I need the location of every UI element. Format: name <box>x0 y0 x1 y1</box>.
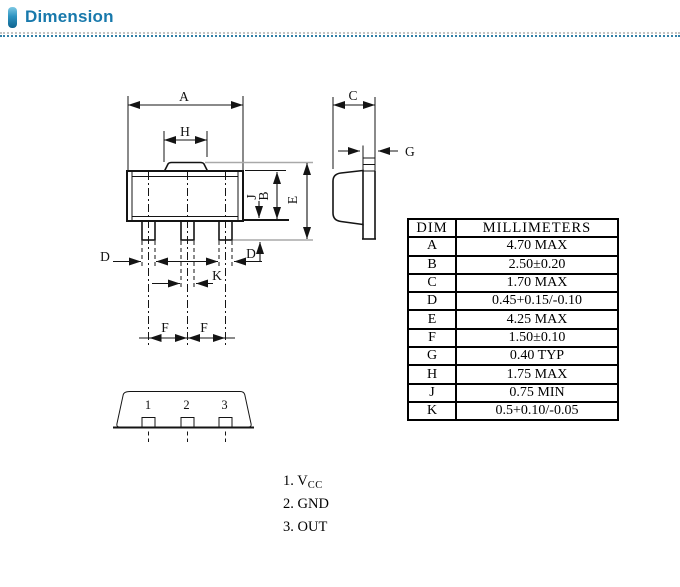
pin-list-item-1: 1. VCC <box>283 470 329 493</box>
dim-label-f-right: F <box>200 320 208 335</box>
table-row: F1.50±0.10 <box>408 329 618 347</box>
pin-3-label: 3. OUT <box>283 519 327 535</box>
dim-label-h: H <box>180 124 190 139</box>
pin-list-item-3: 3. OUT <box>283 516 329 539</box>
table-row: A4.70 MAX <box>408 237 618 255</box>
value-cell: 0.75 MIN <box>456 384 618 402</box>
col-header-dim: DIM <box>408 219 456 237</box>
value-cell: 0.45+0.15/-0.10 <box>456 292 618 310</box>
table-row: E4.25 MAX <box>408 310 618 328</box>
pin-number-1: 1 <box>145 398 151 412</box>
table-row: J0.75 MIN <box>408 384 618 402</box>
dim-label-d-right: D <box>246 246 256 261</box>
value-cell: 2.50±0.20 <box>456 256 618 274</box>
value-cell: 1.75 MAX <box>456 365 618 383</box>
dim-label-f-left: F <box>161 320 169 335</box>
dim-cell: G <box>408 347 456 365</box>
value-cell: 1.70 MAX <box>456 274 618 292</box>
col-header-millimeters: MILLIMETERS <box>456 219 618 237</box>
dim-cell: J <box>408 384 456 402</box>
dim-cell: H <box>408 365 456 383</box>
dim-cell: F <box>408 329 456 347</box>
pin-list: 1. VCC 2. GND 3. OUT <box>283 470 329 539</box>
value-cell: 4.70 MAX <box>456 237 618 255</box>
pin-list-item-2: 2. GND <box>283 493 329 516</box>
table-header-row: DIM MILLIMETERS <box>408 219 618 237</box>
value-cell: 4.25 MAX <box>456 310 618 328</box>
pin-1-label: 1. V <box>283 473 308 489</box>
dim-cell: E <box>408 310 456 328</box>
table-row: B2.50±0.20 <box>408 256 618 274</box>
value-cell: 1.50±0.10 <box>456 329 618 347</box>
value-cell: 0.5+0.10/-0.05 <box>456 402 618 420</box>
dim-label-g: G <box>405 144 415 159</box>
pin-1-label-subscript: CC <box>308 480 323 491</box>
dim-label-a: A <box>179 89 189 104</box>
dim-label-d-left: D <box>100 249 110 264</box>
dim-label-k: K <box>212 268 222 283</box>
front-view: A H J B E D <box>100 89 313 348</box>
datasheet-dimension-page: { "header": { "title": "Dimension" }, "d… <box>0 0 680 587</box>
dim-cell: A <box>408 237 456 255</box>
dim-label-b: B <box>256 191 271 200</box>
pin-number-3: 3 <box>221 398 227 412</box>
dim-cell: B <box>408 256 456 274</box>
dim-label-e: E <box>285 196 300 204</box>
pin-number-2: 2 <box>183 398 189 412</box>
table-row: K0.5+0.10/-0.05 <box>408 402 618 420</box>
side-view: C G <box>333 88 415 239</box>
dim-label-c: C <box>348 88 357 103</box>
dim-cell: D <box>408 292 456 310</box>
dim-cell: C <box>408 274 456 292</box>
pin-2-label: 2. GND <box>283 496 329 512</box>
dimension-table: DIM MILLIMETERS A4.70 MAX B2.50±0.20 C1.… <box>407 218 619 421</box>
table-row: C1.70 MAX <box>408 274 618 292</box>
value-cell: 0.40 TYP <box>456 347 618 365</box>
table-row: D0.45+0.15/-0.10 <box>408 292 618 310</box>
table-row: G0.40 TYP <box>408 347 618 365</box>
dim-cell: K <box>408 402 456 420</box>
table-row: H1.75 MAX <box>408 365 618 383</box>
bottom-view: 1 2 3 <box>113 392 254 443</box>
